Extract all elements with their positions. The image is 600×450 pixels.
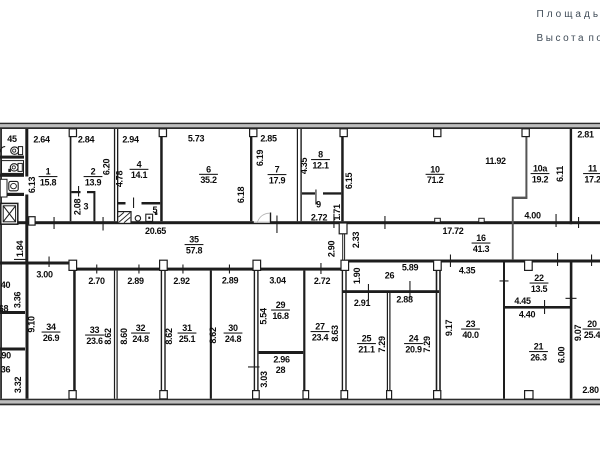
svg-text:4.78: 4.78: [115, 171, 125, 188]
svg-text:2.96: 2.96: [273, 355, 290, 365]
svg-text:2.92: 2.92: [173, 276, 190, 286]
svg-text:35.2: 35.2: [200, 175, 217, 185]
svg-text:34: 34: [46, 322, 56, 332]
svg-text:3: 3: [83, 202, 88, 212]
svg-text:25.1: 25.1: [179, 334, 196, 344]
svg-text:2.72: 2.72: [314, 276, 331, 286]
svg-text:2.81: 2.81: [577, 129, 594, 139]
svg-text:5: 5: [152, 205, 157, 215]
svg-text:8.62: 8.62: [103, 328, 113, 345]
svg-text:5.89: 5.89: [402, 263, 419, 273]
svg-text:2.80: 2.80: [582, 385, 599, 395]
svg-text:4: 4: [137, 159, 142, 169]
svg-text:22: 22: [534, 273, 544, 283]
svg-text:2.85: 2.85: [260, 133, 277, 143]
svg-text:30: 30: [228, 323, 238, 333]
svg-text:2.64: 2.64: [33, 134, 50, 144]
svg-text:40.0: 40.0: [462, 330, 479, 340]
svg-text:2.90: 2.90: [327, 241, 337, 258]
svg-text:23: 23: [466, 319, 476, 329]
svg-text:5.73: 5.73: [188, 133, 205, 143]
svg-text:68: 68: [0, 304, 8, 314]
svg-text:2.72: 2.72: [311, 212, 328, 222]
svg-text:17.9: 17.9: [269, 175, 286, 185]
svg-text:57.8: 57.8: [186, 245, 203, 255]
svg-text:15.8: 15.8: [40, 177, 57, 187]
svg-text:28: 28: [276, 365, 286, 375]
svg-text:36: 36: [1, 365, 11, 375]
svg-text:11.92: 11.92: [485, 156, 506, 166]
svg-text:3.36: 3.36: [13, 292, 23, 309]
svg-text:12.1: 12.1: [312, 160, 329, 170]
svg-text:2: 2: [91, 167, 96, 177]
svg-text:45: 45: [7, 134, 17, 144]
svg-text:2.88: 2.88: [396, 295, 413, 305]
svg-text:20: 20: [587, 319, 597, 329]
svg-text:3.00: 3.00: [36, 270, 53, 280]
svg-text:24.8: 24.8: [225, 334, 242, 344]
svg-text:41.3: 41.3: [473, 244, 490, 254]
svg-text:6.15: 6.15: [344, 173, 354, 190]
svg-text:32: 32: [136, 323, 146, 333]
svg-text:10: 10: [430, 164, 440, 174]
svg-text:3.04: 3.04: [269, 276, 286, 286]
svg-text:1.71: 1.71: [332, 204, 342, 221]
svg-text:16.8: 16.8: [272, 311, 289, 321]
svg-text:25: 25: [362, 334, 372, 344]
svg-text:8: 8: [318, 150, 323, 160]
svg-text:10a: 10a: [533, 164, 548, 174]
svg-text:6.20: 6.20: [102, 159, 112, 176]
svg-text:19.2: 19.2: [532, 174, 549, 184]
svg-text:6.11: 6.11: [555, 166, 565, 182]
svg-text:8.62: 8.62: [164, 328, 174, 345]
svg-text:1.90: 1.90: [352, 268, 362, 285]
svg-text:7.29: 7.29: [422, 336, 432, 353]
svg-text:8.63: 8.63: [330, 325, 340, 342]
svg-text:7: 7: [275, 165, 280, 175]
svg-text:16: 16: [476, 233, 486, 243]
svg-text:4.40: 4.40: [519, 310, 536, 320]
svg-text:11: 11: [588, 164, 597, 174]
svg-text:24: 24: [409, 334, 419, 344]
svg-text:23.4: 23.4: [312, 332, 329, 342]
svg-text:6.00: 6.00: [557, 347, 567, 364]
svg-text:17.2: 17.2: [584, 174, 600, 184]
svg-text:13.5: 13.5: [531, 284, 548, 294]
svg-text:25.4: 25.4: [584, 330, 600, 340]
svg-text:2.94: 2.94: [122, 134, 139, 144]
svg-text:33: 33: [90, 325, 100, 335]
svg-text:3.03: 3.03: [259, 371, 269, 388]
svg-text:2.70: 2.70: [88, 276, 105, 286]
svg-text:13.9: 13.9: [85, 177, 102, 187]
svg-text:5.54: 5.54: [259, 308, 269, 325]
svg-text:6.18: 6.18: [236, 187, 246, 204]
svg-text:9.07: 9.07: [573, 325, 583, 342]
svg-text:2.91: 2.91: [354, 298, 371, 308]
svg-text:6: 6: [206, 164, 211, 174]
svg-text:31: 31: [182, 323, 192, 333]
svg-text:4.35: 4.35: [459, 265, 476, 275]
svg-text:17.72: 17.72: [442, 226, 463, 236]
svg-text:21.1: 21.1: [358, 344, 375, 354]
svg-text:3.32: 3.32: [13, 377, 23, 394]
svg-text:8.60: 8.60: [119, 328, 129, 345]
svg-text:9: 9: [316, 200, 321, 210]
svg-text:2.89: 2.89: [127, 276, 144, 286]
svg-text:29: 29: [276, 300, 286, 310]
svg-text:35: 35: [189, 235, 199, 245]
svg-text:14.1: 14.1: [131, 170, 148, 180]
svg-text:9.17: 9.17: [444, 320, 454, 337]
svg-text:9.10: 9.10: [27, 316, 37, 333]
svg-text:20.65: 20.65: [145, 226, 166, 236]
svg-text:23.6: 23.6: [86, 336, 103, 346]
svg-text:1: 1: [46, 167, 51, 177]
svg-text:27: 27: [315, 322, 325, 332]
svg-text:20.9: 20.9: [405, 344, 422, 354]
svg-text:26: 26: [385, 271, 395, 281]
svg-text:4.00: 4.00: [524, 211, 541, 221]
svg-text:40: 40: [1, 280, 11, 290]
svg-text:.90: .90: [0, 351, 11, 361]
svg-text:4.35: 4.35: [299, 158, 309, 175]
svg-text:Высота потолков: Высота потолков: [537, 33, 600, 44]
svg-text:71.2: 71.2: [427, 175, 444, 185]
svg-text:7.29: 7.29: [377, 336, 387, 353]
svg-text:6.13: 6.13: [27, 177, 37, 194]
svg-text:4.45: 4.45: [514, 296, 531, 306]
svg-text:2.33: 2.33: [351, 232, 361, 249]
svg-text:8.62: 8.62: [208, 327, 218, 344]
svg-text:1.84: 1.84: [15, 241, 25, 258]
svg-text:26.9: 26.9: [43, 333, 60, 343]
svg-text:24.8: 24.8: [132, 334, 149, 344]
svg-text:6.19: 6.19: [255, 150, 265, 167]
svg-text:26.3: 26.3: [530, 352, 547, 362]
svg-text:Площадь офиса: Площадь офиса: [537, 8, 600, 20]
svg-text:21: 21: [534, 342, 544, 352]
svg-text:2.08: 2.08: [73, 199, 83, 216]
svg-text:2.89: 2.89: [222, 276, 239, 286]
svg-text:2.84: 2.84: [78, 134, 95, 144]
